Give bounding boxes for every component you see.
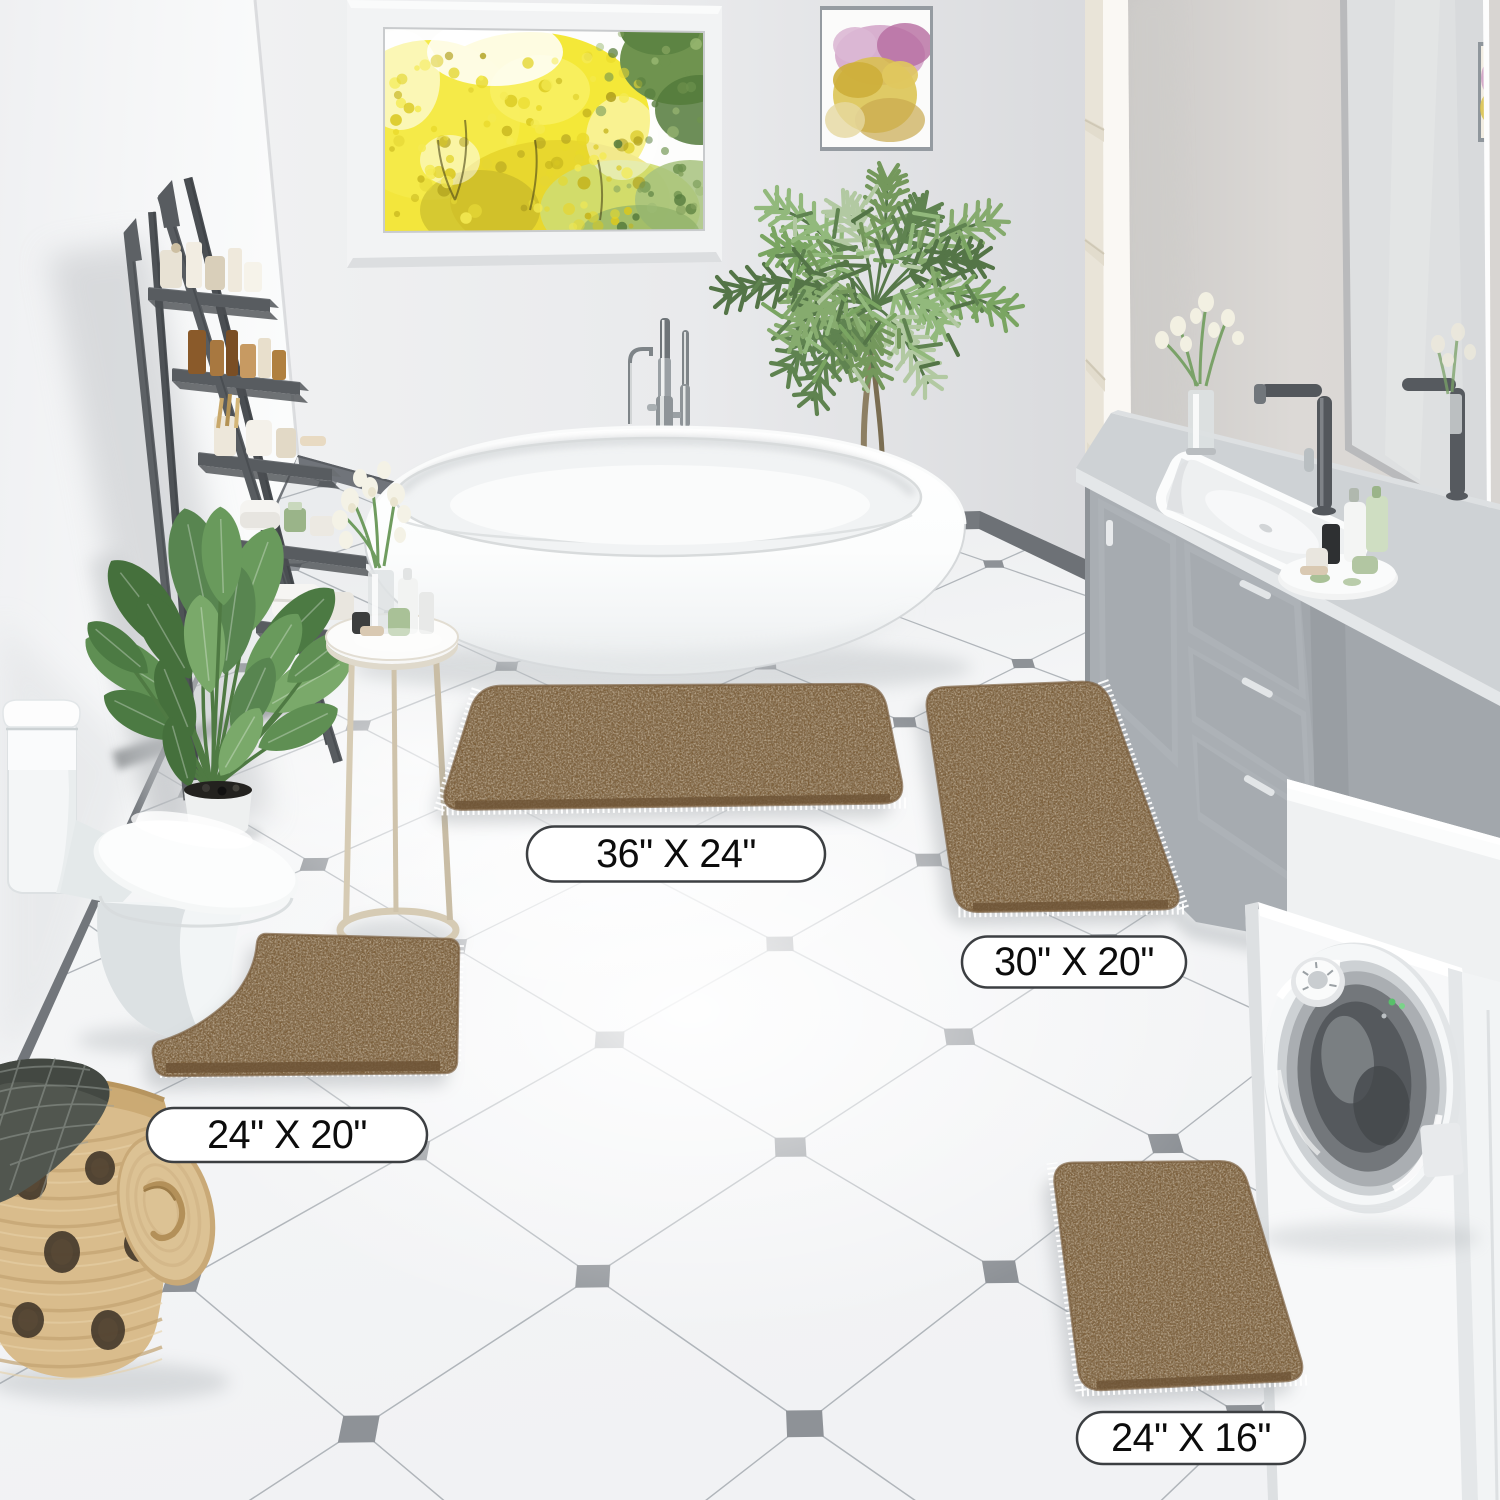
svg-text:24" X 16": 24" X 16" — [1111, 1416, 1271, 1460]
svg-text:36" X 24": 36" X 24" — [596, 832, 756, 876]
svg-text:30" X 20": 30" X 20" — [994, 940, 1154, 984]
svg-text:24" X 20": 24" X 20" — [207, 1113, 367, 1157]
